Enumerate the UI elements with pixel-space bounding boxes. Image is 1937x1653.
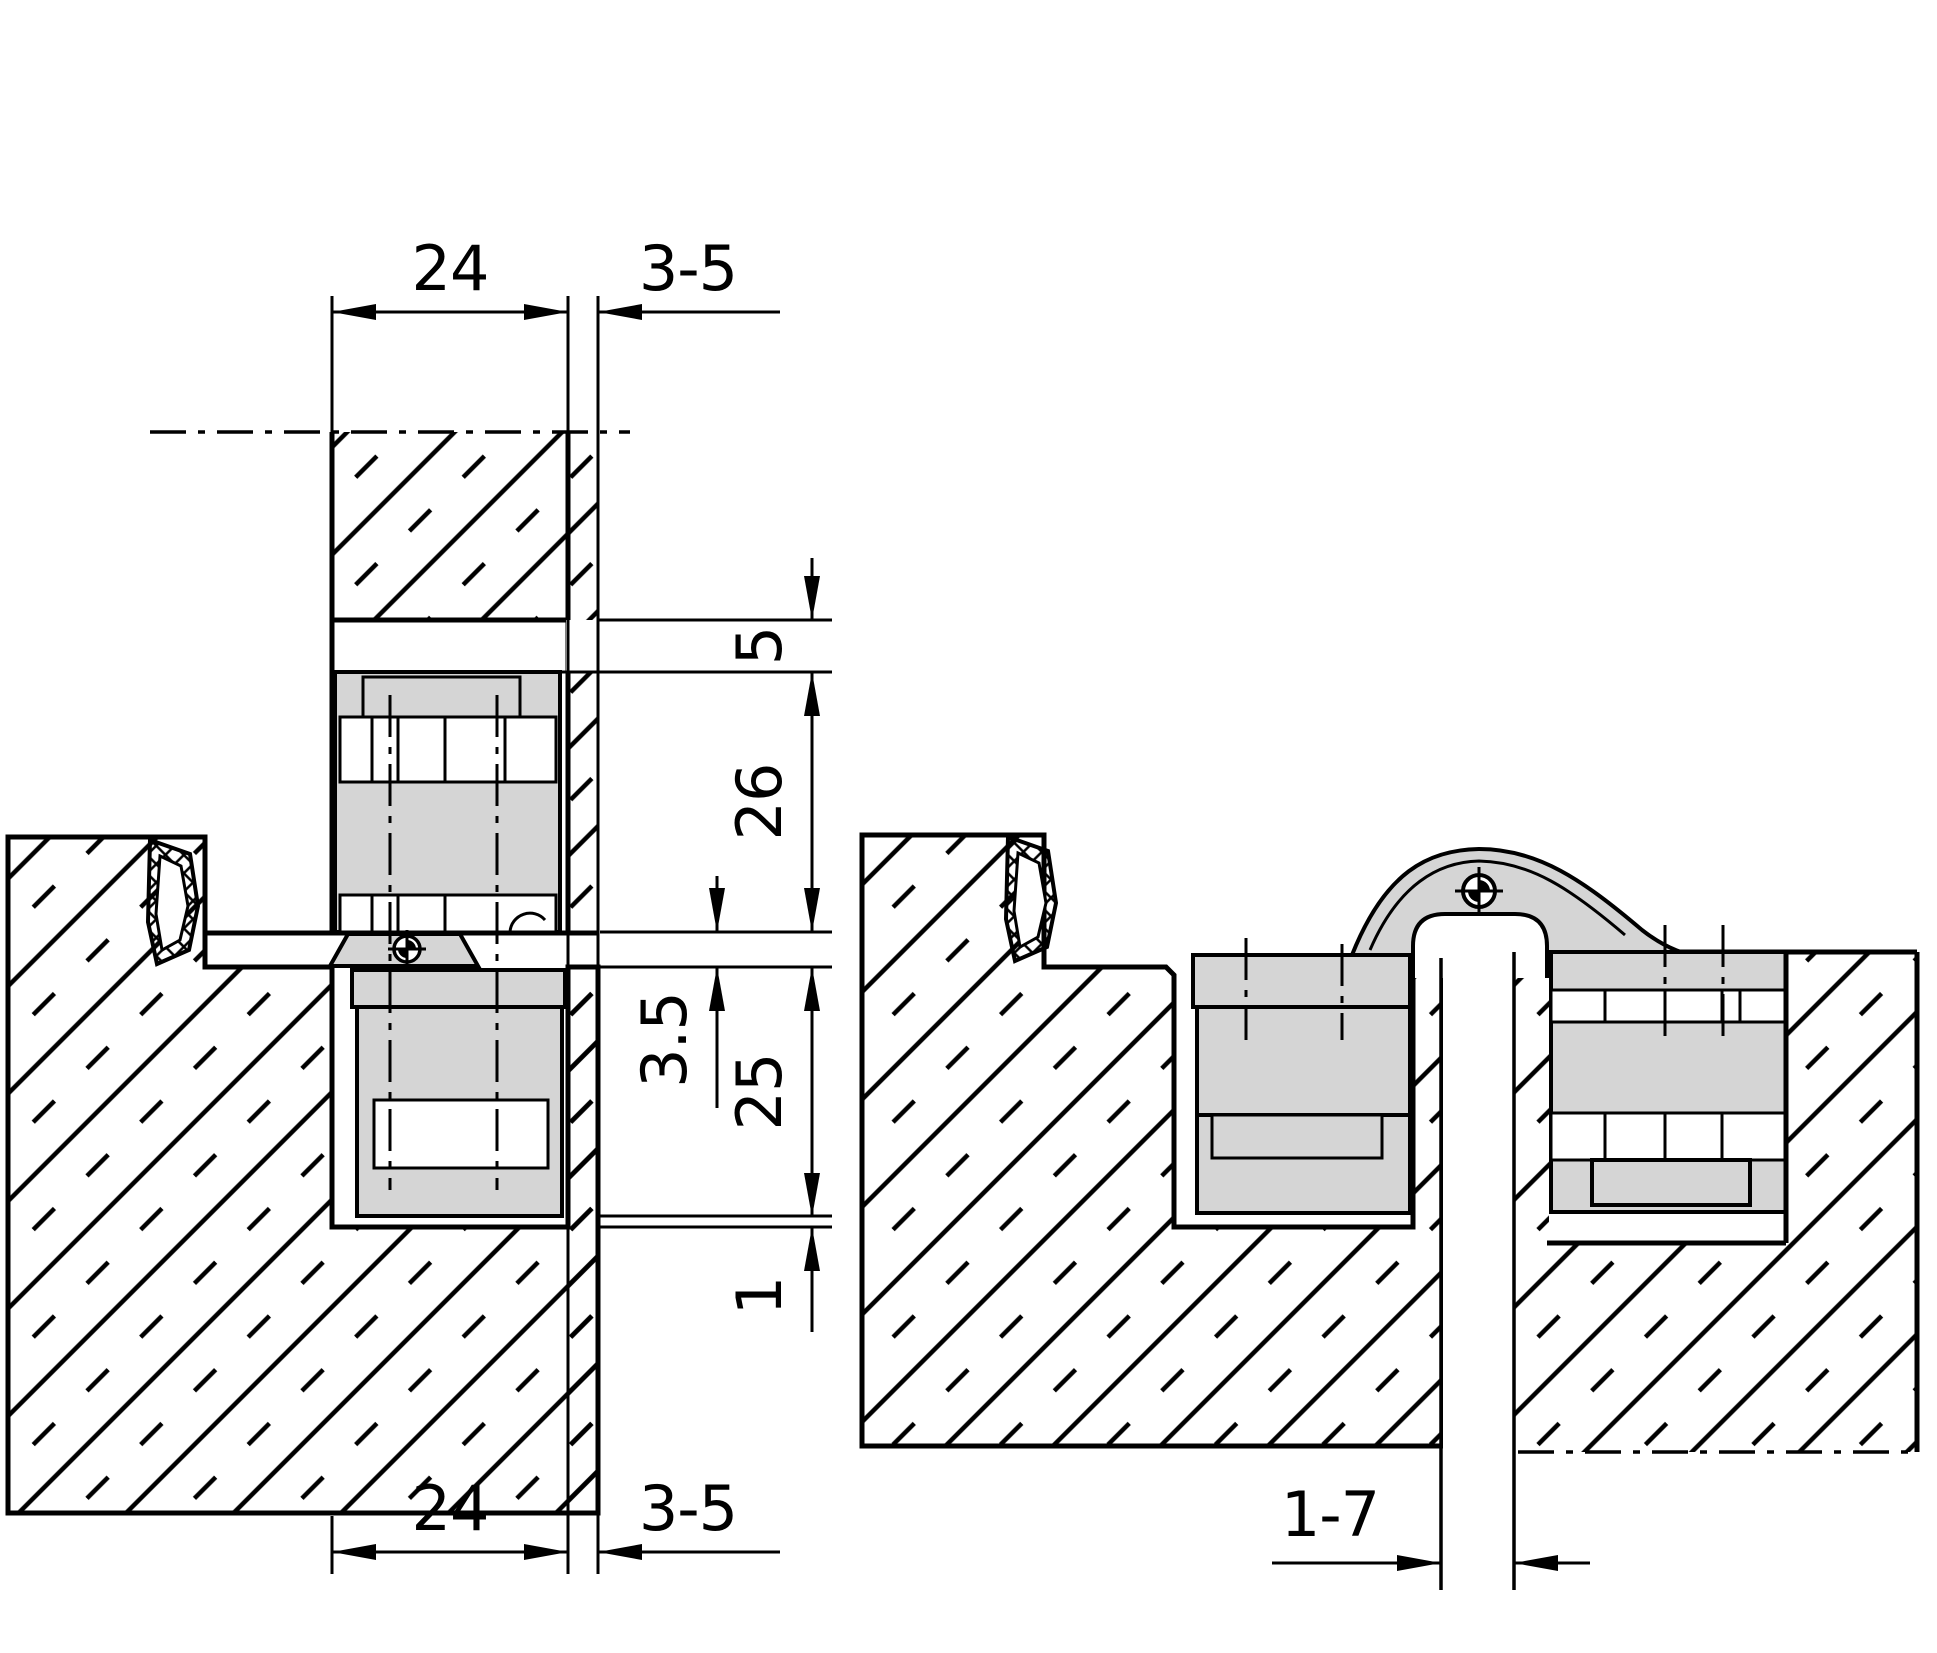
hinge-cup-door-side xyxy=(1547,925,1786,1243)
dimensions-open: 1-7 xyxy=(1272,1478,1590,1571)
dim-pivot-clearance: 3.5 xyxy=(628,992,701,1088)
dim-bottom-clearance: 1 xyxy=(723,1277,796,1315)
hinge-upper-housing xyxy=(335,672,560,932)
hinge-knuckle xyxy=(330,930,478,968)
dim-edge-inset: 5 xyxy=(723,627,796,665)
view-open-section: 1-7 xyxy=(862,835,1917,1590)
dim-door-thickness-bottom: 24 xyxy=(412,1472,489,1545)
hinge-cup-frame-side xyxy=(1193,938,1410,1213)
technical-drawing-page: 24 3-5 24 3-5 5 xyxy=(0,0,1937,1653)
dim-air-gap-bottom: 3-5 xyxy=(639,1472,737,1545)
dim-air-gap-top: 3-5 xyxy=(639,232,737,305)
technical-drawing-canvas: 24 3-5 24 3-5 5 xyxy=(0,0,1937,1653)
dim-door-housing-depth: 26 xyxy=(723,764,796,841)
view-closed-section: 24 3-5 24 3-5 5 xyxy=(8,232,832,1574)
dim-frame-housing-depth: 25 xyxy=(723,1054,796,1131)
dim-door-thickness-top: 24 xyxy=(412,232,489,305)
dim-rebate-gap: 1-7 xyxy=(1281,1478,1379,1551)
